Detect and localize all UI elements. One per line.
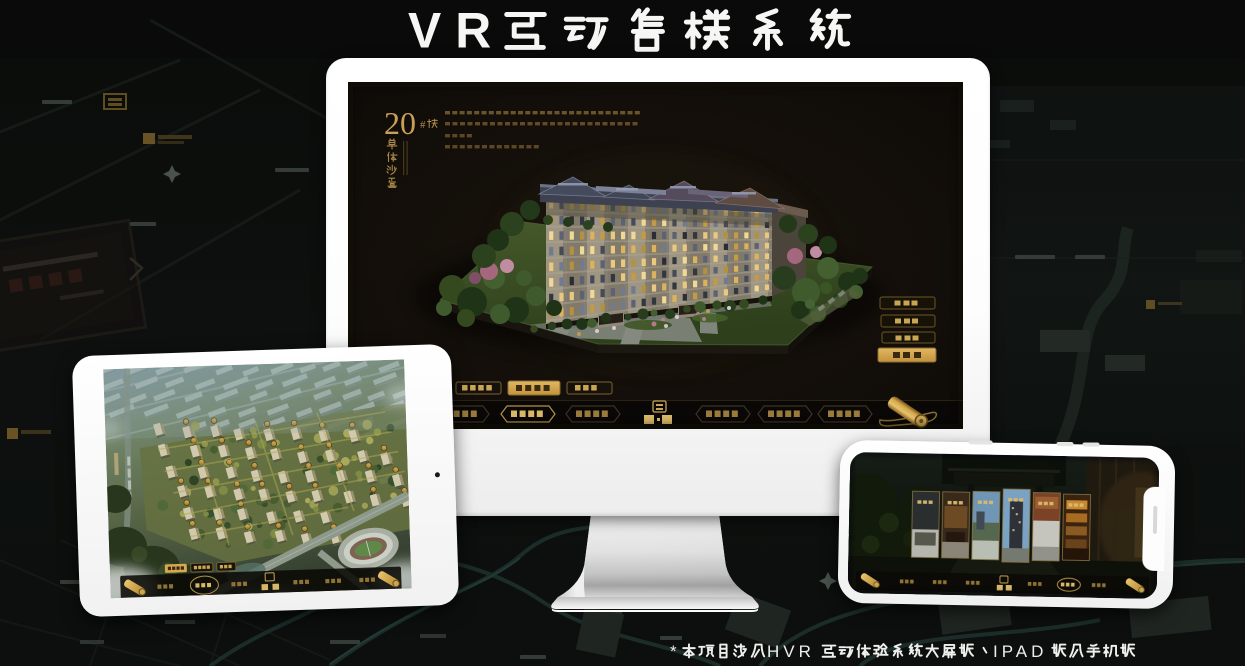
svg-text:*: * bbox=[670, 642, 677, 661]
svg-text:IPAD: IPAD bbox=[993, 642, 1047, 661]
svg-text:VR: VR bbox=[408, 2, 505, 58]
svg-text:#: # bbox=[420, 119, 426, 131]
svg-text:20: 20 bbox=[384, 105, 416, 141]
svg-text:HVR: HVR bbox=[767, 642, 815, 661]
